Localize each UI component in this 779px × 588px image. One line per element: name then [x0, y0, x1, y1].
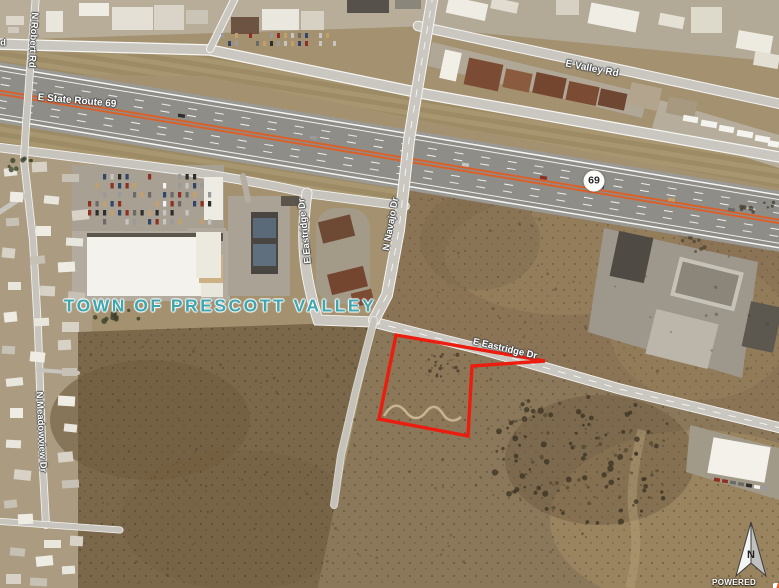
aerial-map: N Robert RddE State Route 69E Valley RdN…	[0, 0, 779, 588]
aerial-photo-layer	[0, 0, 779, 588]
